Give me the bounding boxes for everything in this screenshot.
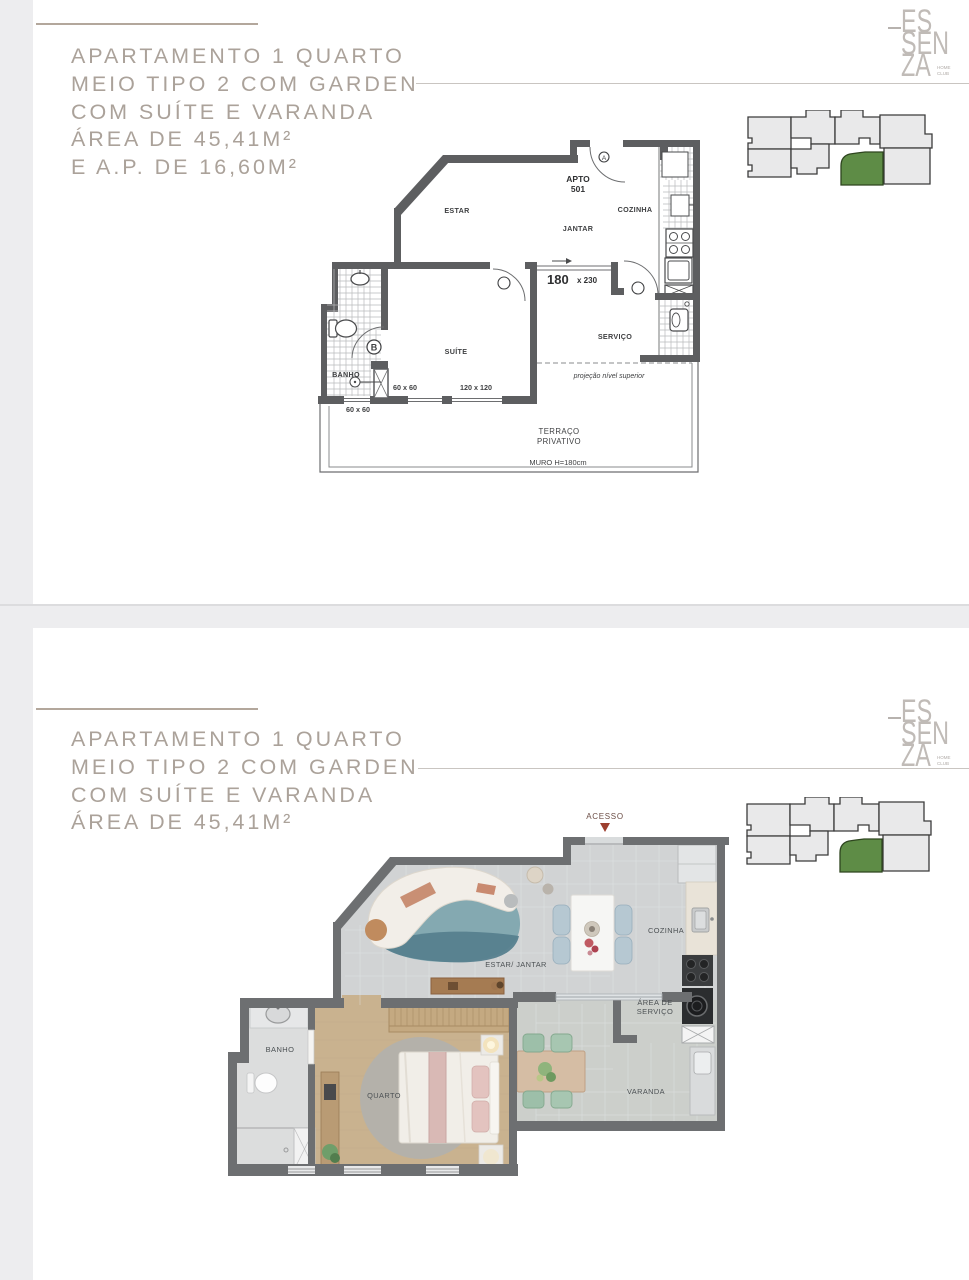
svg-text:x 230: x 230 bbox=[577, 276, 598, 285]
svg-text:ESTAR: ESTAR bbox=[444, 206, 470, 215]
svg-text:A: A bbox=[602, 155, 607, 162]
svg-text:COZINHA: COZINHA bbox=[618, 205, 653, 214]
svg-text:120 x 120: 120 x 120 bbox=[460, 383, 492, 392]
svg-text:ACESSO: ACESSO bbox=[586, 812, 624, 821]
svg-text:BANHO: BANHO bbox=[332, 370, 360, 379]
svg-text:501: 501 bbox=[571, 184, 585, 194]
svg-text:TERRAÇO: TERRAÇO bbox=[539, 427, 580, 436]
svg-text:ÁREA DE: ÁREA DE bbox=[637, 998, 672, 1007]
svg-text:MURO H=180cm: MURO H=180cm bbox=[529, 458, 586, 467]
svg-text:B: B bbox=[371, 343, 378, 353]
svg-text:QUARTO: QUARTO bbox=[367, 1091, 401, 1100]
svg-text:SERVIÇO: SERVIÇO bbox=[598, 332, 632, 341]
svg-text:VARANDA: VARANDA bbox=[627, 1087, 665, 1096]
svg-text:PRIVATIVO: PRIVATIVO bbox=[537, 437, 581, 446]
svg-text:60 x 60: 60 x 60 bbox=[393, 383, 417, 392]
svg-text:60 x 60: 60 x 60 bbox=[346, 405, 370, 414]
svg-text:SERVIÇO: SERVIÇO bbox=[637, 1007, 673, 1016]
svg-text:180: 180 bbox=[547, 272, 569, 287]
svg-text:ESTAR/ JANTAR: ESTAR/ JANTAR bbox=[485, 960, 547, 969]
svg-text:BANHO: BANHO bbox=[266, 1045, 295, 1054]
svg-text:JANTAR: JANTAR bbox=[563, 224, 594, 233]
svg-text:COZINHA: COZINHA bbox=[648, 926, 684, 935]
svg-text:SUÍTE: SUÍTE bbox=[445, 347, 468, 356]
svg-text:projeção nível superior: projeção nível superior bbox=[573, 373, 645, 380]
svg-text:APTO: APTO bbox=[566, 174, 590, 184]
